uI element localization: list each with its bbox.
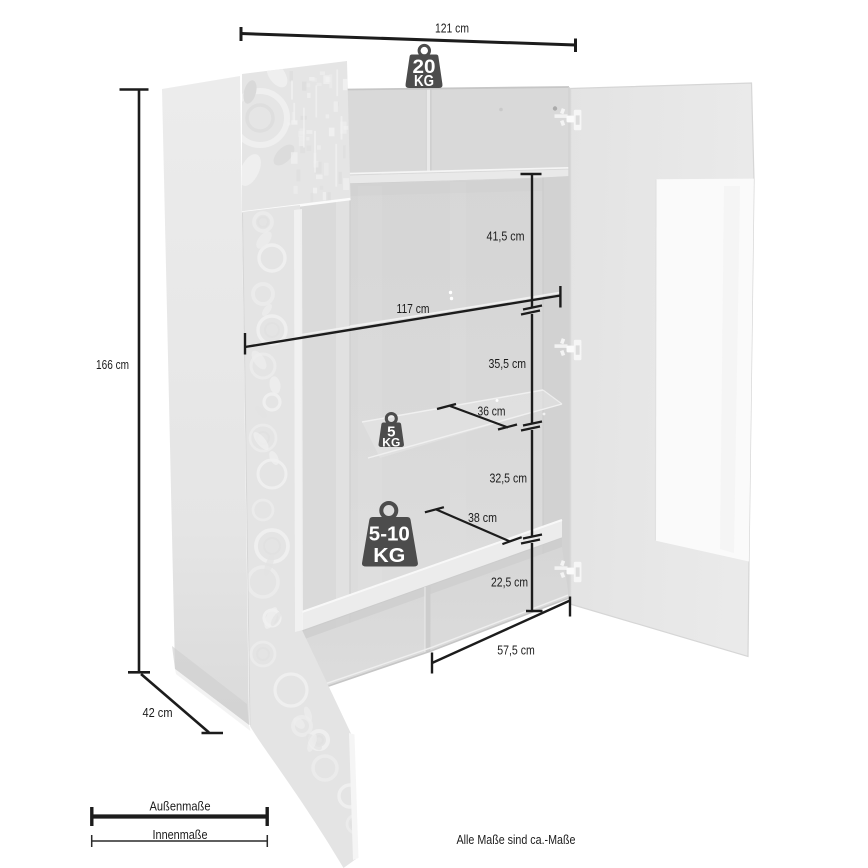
- svg-text:57,5 cm: 57,5 cm: [497, 643, 535, 658]
- svg-text:35,5 cm: 35,5 cm: [489, 356, 527, 371]
- svg-text:Außenmaße: Außenmaße: [150, 799, 211, 814]
- svg-text:Alle Maße sind ca.-Maße: Alle Maße sind ca.-Maße: [457, 832, 576, 847]
- svg-text:166 cm: 166 cm: [96, 357, 129, 372]
- svg-text:42 cm: 42 cm: [143, 705, 173, 720]
- svg-text:32,5 cm: 32,5 cm: [490, 471, 528, 486]
- svg-text:KG: KG: [414, 73, 434, 90]
- svg-text:KG: KG: [373, 544, 405, 567]
- svg-text:22,5 cm: 22,5 cm: [491, 575, 528, 590]
- svg-text:KG: KG: [382, 435, 400, 449]
- svg-text:38 cm: 38 cm: [468, 510, 497, 525]
- svg-text:117 cm: 117 cm: [397, 301, 430, 316]
- svg-text:Innenmaße: Innenmaße: [153, 827, 208, 842]
- svg-text:5-10: 5-10: [369, 523, 410, 546]
- svg-text:41,5 cm: 41,5 cm: [487, 229, 525, 244]
- svg-text:121 cm: 121 cm: [435, 21, 469, 36]
- svg-text:36 cm: 36 cm: [478, 403, 506, 418]
